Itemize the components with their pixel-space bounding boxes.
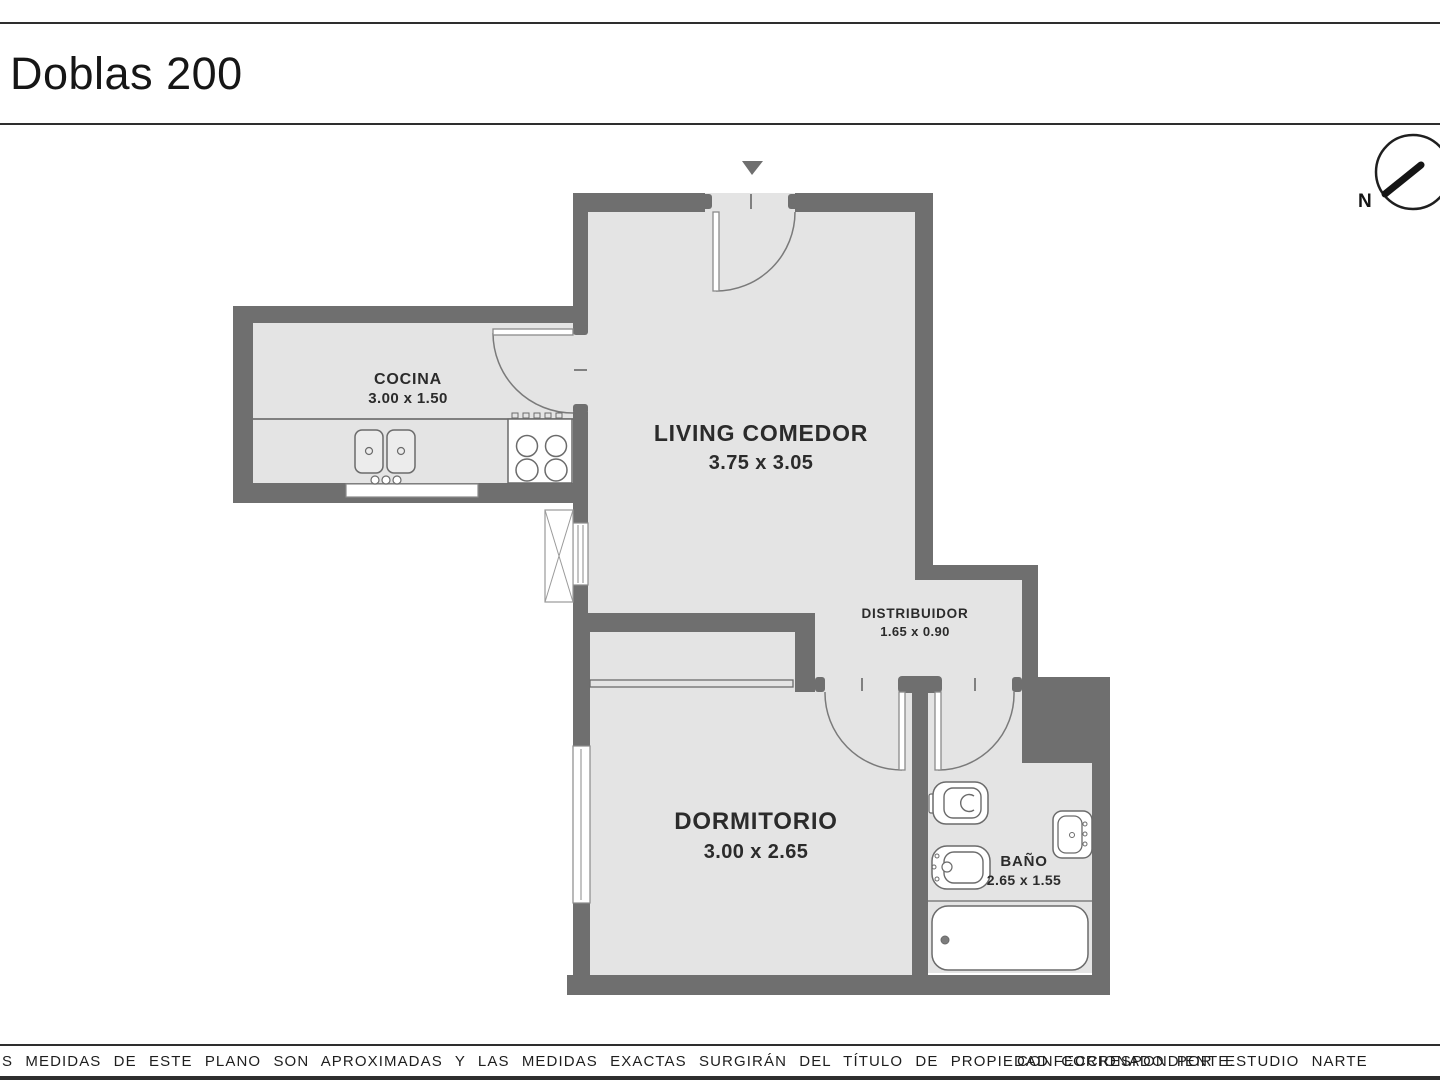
toilet-icon	[929, 782, 988, 824]
room-label-dormitorio: DORMITORIO 3.00 x 2.65	[606, 807, 906, 865]
room-dims: 3.00 x 2.65	[606, 840, 906, 865]
room-name: DISTRIBUIDOR	[835, 606, 995, 623]
stove-icon	[508, 413, 572, 483]
footer-credit: CONFECCIONADO POR ESTUDIO NARTE	[1017, 1053, 1368, 1070]
room-dims: 1.65 x 0.90	[835, 624, 995, 640]
north-compass-icon: N	[1358, 135, 1440, 212]
air-shaft-icon	[545, 510, 573, 602]
compass-north-label: N	[1358, 191, 1372, 212]
room-dims: 3.00 x 1.50	[328, 390, 488, 409]
floor-plan-page: Doblas 200	[0, 0, 1440, 1080]
room-dims: 2.65 x 1.55	[944, 872, 1104, 890]
washbasin-icon	[1053, 811, 1092, 858]
room-name: LIVING COMEDOR	[611, 419, 911, 448]
bedroom-window	[573, 746, 590, 903]
bathtub-icon	[928, 901, 1092, 970]
room-name: DORMITORIO	[606, 807, 906, 837]
shaft-window	[573, 523, 588, 585]
room-name: BAÑO	[944, 853, 1104, 872]
footer-bottom-rule	[0, 1076, 1440, 1080]
room-name: COCINA	[328, 370, 488, 390]
entrance-arrow-icon	[742, 161, 763, 175]
kitchen-window	[346, 484, 478, 497]
room-dims: 3.75 x 3.05	[611, 451, 911, 476]
footer-top-rule	[0, 1044, 1440, 1046]
room-label-cocina: COCINA 3.00 x 1.50	[328, 370, 488, 409]
room-label-living: LIVING COMEDOR 3.75 x 3.05	[611, 419, 911, 476]
room-label-distribuidor: DISTRIBUIDOR 1.65 x 0.90	[835, 606, 995, 640]
room-label-bano: BAÑO 2.65 x 1.55	[944, 853, 1104, 889]
floor-plan-drawing: N	[0, 0, 1440, 1080]
